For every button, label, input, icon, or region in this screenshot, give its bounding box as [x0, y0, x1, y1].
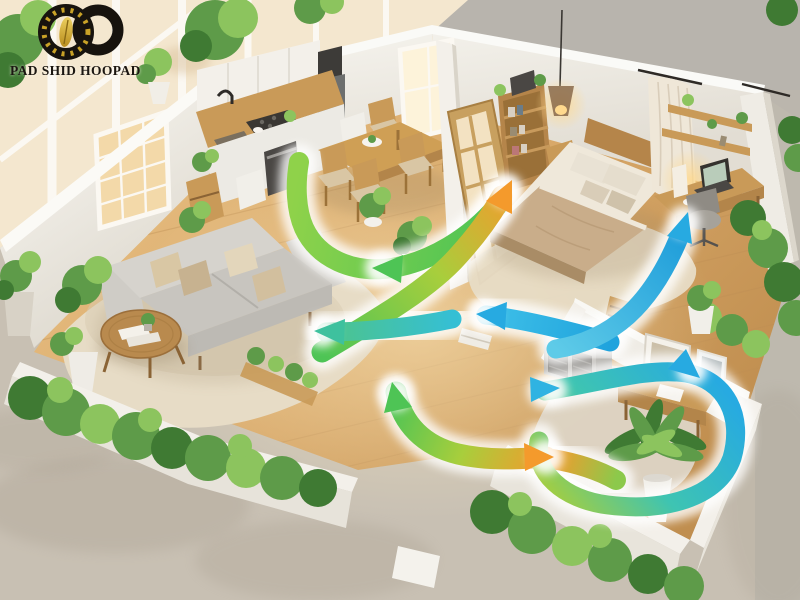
desk-lamp [672, 164, 688, 198]
rendered-scene: PAD SHID HOOPAD [0, 0, 800, 600]
brand-logo: PAD SHID HOOPAD [10, 4, 160, 79]
brand-emblem [10, 4, 140, 60]
apartment-airflow-illustration [0, 0, 800, 600]
brand-wordmark: PAD SHID HOOPAD [10, 63, 160, 79]
